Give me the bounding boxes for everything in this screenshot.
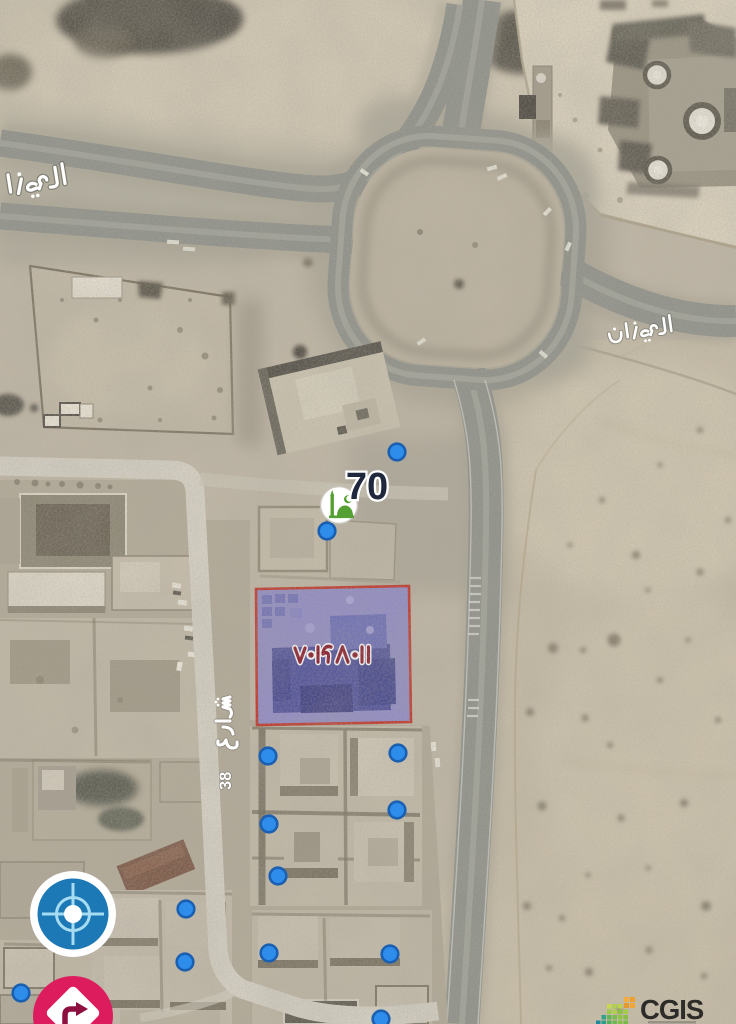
svg-text:CGIS: CGIS [640, 994, 704, 1024]
svg-text:38: 38 [217, 772, 235, 790]
svg-text:70: 70 [346, 466, 388, 508]
